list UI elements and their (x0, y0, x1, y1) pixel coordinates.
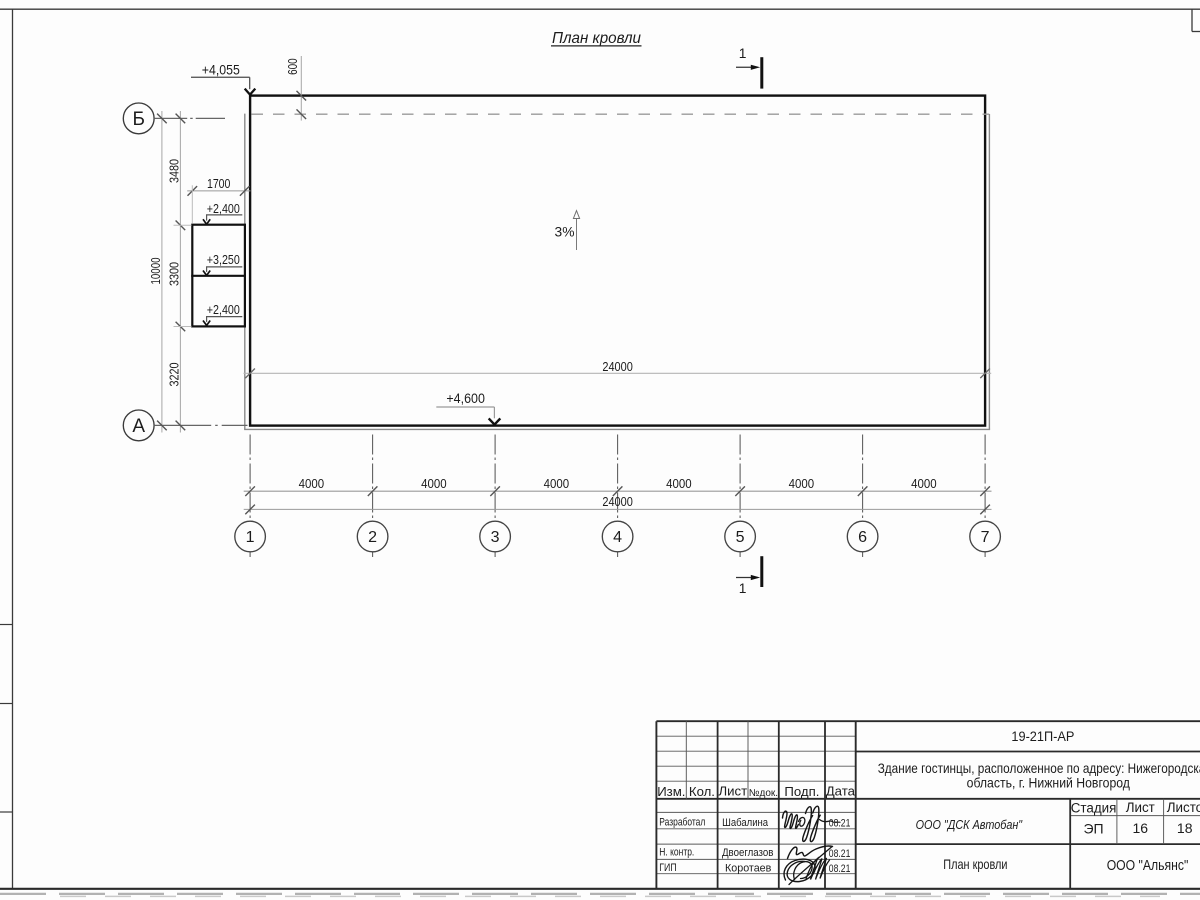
svg-text:1: 1 (246, 529, 255, 546)
svg-text:4000: 4000 (299, 476, 325, 491)
svg-text:24000: 24000 (602, 359, 633, 374)
svg-text:+4,600: +4,600 (446, 390, 485, 406)
svg-text:Подп.: Подп. (784, 784, 819, 799)
svg-text:План кровли: План кровли (943, 857, 1007, 872)
svg-text:Стадия: Стадия (1071, 801, 1117, 816)
svg-text:№док.: №док. (749, 788, 778, 799)
svg-text:08.21: 08.21 (829, 848, 851, 860)
svg-text:ГИП: ГИП (659, 862, 676, 874)
svg-text:4000: 4000 (421, 476, 447, 491)
svg-text:Лист: Лист (718, 783, 747, 798)
svg-text:Коротаев: Коротаев (725, 863, 771, 875)
svg-text:+3,250: +3,250 (207, 252, 240, 267)
svg-text:2: 2 (368, 529, 377, 546)
svg-text:08.21: 08.21 (829, 863, 851, 875)
svg-text:4000: 4000 (544, 476, 570, 491)
svg-text:3300: 3300 (167, 262, 182, 286)
svg-text:ООО "Альянс": ООО "Альянс" (1107, 857, 1189, 874)
svg-text:10000: 10000 (148, 258, 163, 285)
svg-text:область, г. Нижний Новгород: область, г. Нижний Новгород (967, 775, 1130, 791)
svg-text:24000: 24000 (602, 494, 633, 509)
svg-text:Б: Б (132, 109, 144, 130)
svg-text:ЭП: ЭП (1083, 821, 1103, 837)
svg-text:600: 600 (285, 58, 300, 75)
svg-text:6: 6 (858, 529, 867, 546)
svg-text:Разработал: Разработал (659, 817, 705, 829)
svg-text:А: А (132, 416, 145, 437)
svg-text:1700: 1700 (207, 176, 231, 191)
svg-text:План кровли: План кровли (552, 30, 641, 47)
svg-text:4: 4 (613, 529, 622, 546)
svg-text:Кол.: Кол. (689, 784, 715, 799)
svg-text:5: 5 (736, 529, 745, 546)
svg-text:+2,400: +2,400 (207, 201, 240, 216)
svg-text:ООО "ДСК Автобан": ООО "ДСК Автобан" (916, 817, 1024, 832)
svg-text:+2,400: +2,400 (207, 302, 240, 317)
svg-text:18: 18 (1177, 820, 1193, 836)
svg-text:4000: 4000 (666, 476, 692, 491)
svg-text:3%: 3% (555, 224, 575, 239)
svg-text:+4,055: +4,055 (202, 61, 240, 77)
svg-text:16: 16 (1132, 820, 1148, 836)
svg-text:Лист: Лист (1126, 800, 1155, 815)
svg-text:1: 1 (739, 46, 747, 61)
svg-text:08.21: 08.21 (829, 817, 851, 829)
svg-text:3220: 3220 (167, 363, 182, 387)
svg-text:3480: 3480 (167, 159, 182, 183)
svg-text:Дата: Дата (826, 783, 856, 798)
svg-text:Здание гостинцы, расположенное: Здание гостинцы, расположенное по адресу… (878, 760, 1200, 776)
svg-text:7: 7 (981, 529, 990, 546)
svg-text:3: 3 (491, 529, 500, 546)
svg-text:4000: 4000 (911, 476, 937, 491)
svg-text:1: 1 (739, 581, 747, 596)
svg-text:Листов: Листов (1167, 800, 1200, 815)
svg-text:Н. контр.: Н. контр. (659, 847, 694, 859)
svg-text:19-21П-АР: 19-21П-АР (1011, 729, 1074, 745)
svg-text:Шабалина: Шабалина (722, 817, 769, 829)
svg-text:Изм.: Изм. (657, 784, 685, 799)
svg-text:4000: 4000 (789, 476, 815, 491)
svg-text:Двоеглазов: Двоеглазов (722, 847, 773, 859)
